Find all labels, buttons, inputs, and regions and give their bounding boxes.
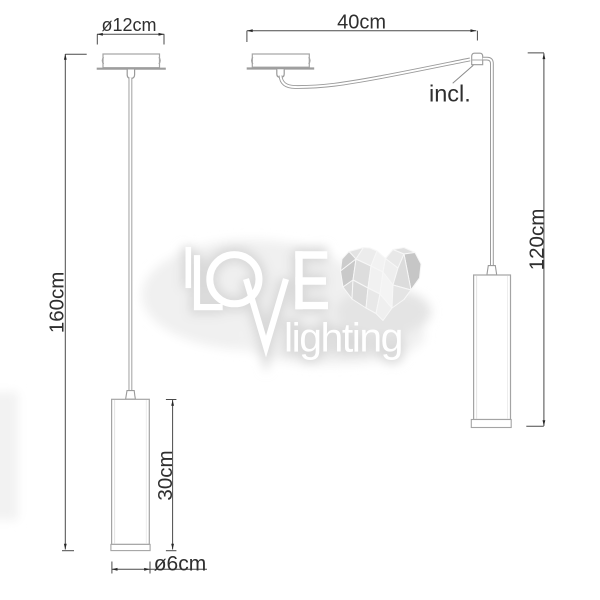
svg-text:lighting: lighting — [284, 315, 402, 361]
svg-text:ø12cm: ø12cm — [101, 15, 156, 35]
svg-text:40cm: 40cm — [337, 11, 386, 33]
svg-text:30cm: 30cm — [154, 450, 177, 500]
svg-text:ø6cm: ø6cm — [154, 553, 207, 576]
svg-text:incl.: incl. — [429, 81, 471, 107]
svg-text:160cm: 160cm — [46, 272, 69, 334]
svg-text:120cm: 120cm — [526, 209, 549, 271]
